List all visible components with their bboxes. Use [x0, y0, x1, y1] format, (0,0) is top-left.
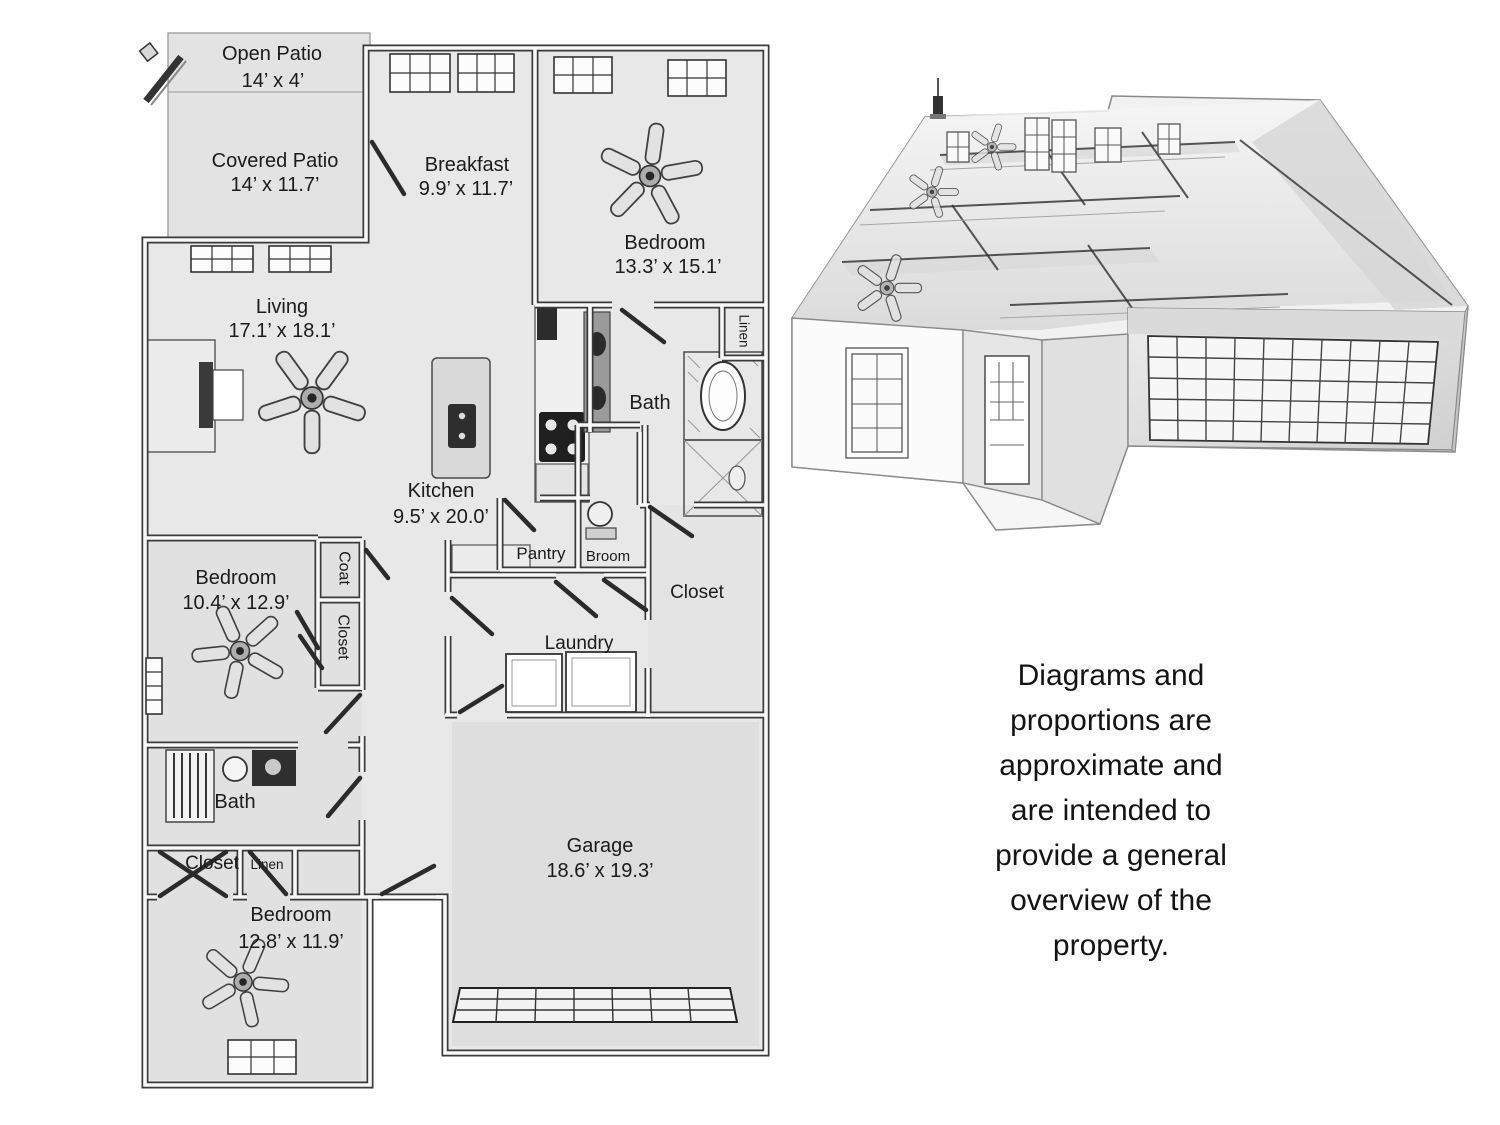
- page: Open Patio 14’ x 4’ Covered Patio 14’ x …: [0, 0, 1500, 1125]
- room-label-bedroom-ml: Bedroom: [195, 567, 276, 589]
- garage-door-plan: [453, 988, 737, 1022]
- label-linen-bottom: Linen: [250, 857, 283, 872]
- room-dims-garage: 18.6’ x 19.3’: [546, 860, 653, 882]
- label-closet-bottom: Closet: [185, 853, 240, 874]
- room-label-kitchen: Kitchen: [408, 480, 475, 502]
- disclaimer-line: provide a general: [949, 833, 1273, 878]
- room-dims-breakfast: 9.9’ x 11.7’: [419, 178, 514, 200]
- room-dims-living: 17.1’ x 18.1’: [228, 320, 335, 342]
- window: [390, 54, 450, 92]
- room-dims-covered-patio: 14’ x 11.7’: [231, 174, 320, 196]
- garage-door-3d: [1148, 336, 1438, 444]
- dryer-icon: [566, 652, 636, 712]
- laundry-appliances: [506, 652, 636, 712]
- label-laundry: Laundry: [545, 633, 614, 654]
- disclaimer-line: proportions are: [949, 698, 1273, 743]
- floor-plan: Open Patio 14’ x 4’ Covered Patio 14’ x …: [140, 33, 766, 1085]
- window: [458, 54, 514, 92]
- window: [191, 246, 253, 272]
- window: [554, 57, 612, 93]
- disclaimer-line: Diagrams and: [949, 653, 1273, 698]
- chimney-icon: [930, 78, 946, 119]
- label-closet-hall: Closet: [334, 614, 351, 660]
- kitchen-island-icon: [432, 358, 490, 478]
- window: [146, 658, 162, 714]
- room-dims-bedroom-ml: 10.4’ x 12.9’: [182, 592, 289, 614]
- room-dims-open-patio: 14’ x 4’: [242, 70, 305, 92]
- label-bath-top: Bath: [629, 392, 670, 414]
- room-dims-bedroom-ur: 13.3’ x 15.1’: [614, 256, 721, 278]
- disclaimer-text: Diagrams and proportions are approximate…: [949, 653, 1273, 968]
- room-label-bedroom-ur: Bedroom: [624, 232, 705, 254]
- window: [228, 1040, 296, 1074]
- room-label-garage: Garage: [567, 835, 634, 857]
- closet-floor: [648, 505, 760, 715]
- disclaimer-line: are intended to: [949, 788, 1273, 833]
- disclaimer-line: overview of the: [949, 878, 1273, 923]
- floor-plan-and-render: Open Patio 14’ x 4’ Covered Patio 14’ x …: [0, 0, 1500, 1125]
- disclaimer-line: property.: [949, 923, 1273, 968]
- toilet-icon: [588, 502, 612, 526]
- label-closet-master: Closet: [670, 582, 725, 603]
- disclaimer-line: approximate and: [949, 743, 1273, 788]
- room-dims-kitchen: 9.5’ x 20.0’: [393, 506, 489, 528]
- tub-icon: [701, 362, 745, 430]
- room-label-living: Living: [256, 296, 308, 318]
- render-front-window: [846, 348, 908, 458]
- room-label-open-patio: Open Patio: [222, 43, 322, 65]
- room-label-breakfast: Breakfast: [425, 154, 510, 176]
- render-3d: [792, 78, 1468, 530]
- room-dims-bedroom-bl: 12.8’ x 11.9’: [238, 931, 344, 953]
- window: [668, 60, 726, 96]
- entry-door-3d: [985, 356, 1029, 484]
- window: [269, 246, 331, 272]
- label-linen-top: Linen: [736, 314, 751, 347]
- room-label-covered-patio: Covered Patio: [212, 150, 339, 172]
- toilet-icon: [223, 757, 247, 781]
- label-broom: Broom: [586, 548, 630, 565]
- room-label-bedroom-bl: Bedroom: [250, 904, 331, 926]
- label-pantry: Pantry: [516, 544, 566, 563]
- label-bath-bottom: Bath: [214, 791, 255, 813]
- label-coat: Coat: [335, 551, 352, 585]
- washer-icon: [506, 654, 562, 712]
